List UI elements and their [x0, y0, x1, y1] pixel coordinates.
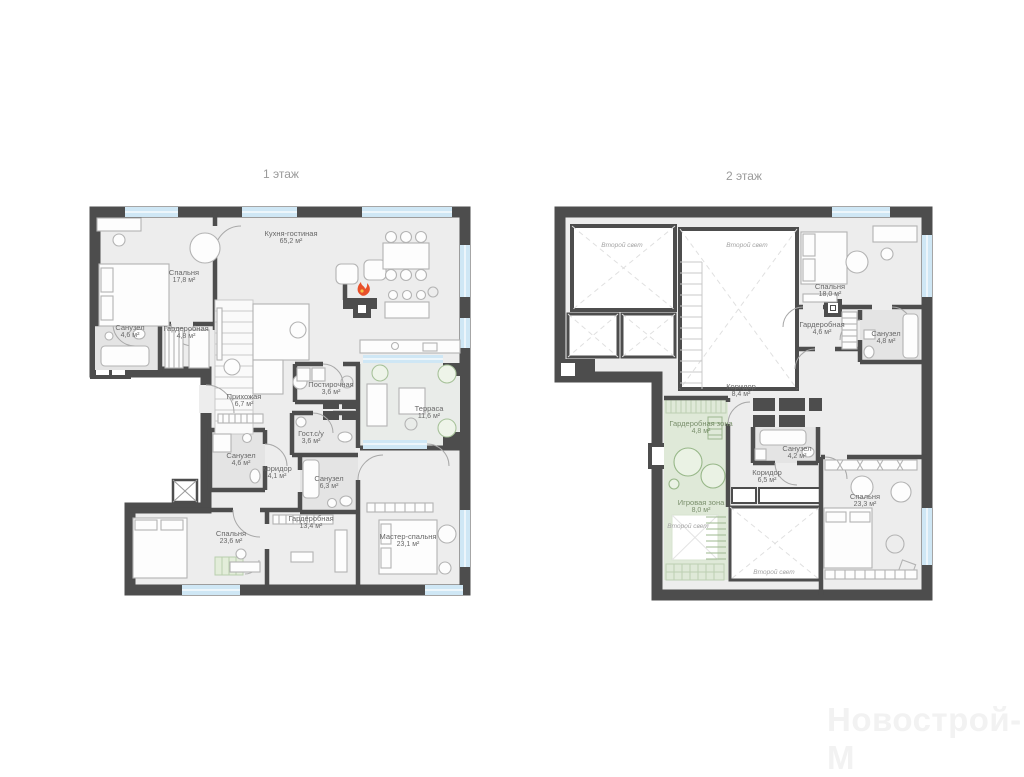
floor2-title: 2 этаж: [726, 169, 762, 183]
void-label: Второй свет: [601, 242, 642, 250]
room-label: Гардеробная зона4,8 м²: [669, 419, 732, 437]
room-label: Санузел4,6 м²: [115, 323, 144, 341]
floor2-plan: [560, 212, 927, 595]
room-label: Коридор6,5 м²: [752, 468, 782, 486]
void-label: Второй свет: [726, 242, 767, 250]
vent-shaft: [173, 480, 197, 502]
room-label: Терраса11,6 м²: [415, 404, 444, 422]
room-label: Санузел4,2 м²: [782, 444, 811, 462]
floor1-title: 1 этаж: [263, 167, 299, 181]
room-label: Санузел4,8 м²: [871, 329, 900, 347]
room-label: Коридор4,1 м²: [262, 464, 292, 482]
room-label: Гардеробная13,4 м²: [288, 514, 333, 532]
developer-watermark: Новострой-М: [827, 701, 1024, 777]
room-label: Мастер-спальня23,1 м²: [380, 532, 437, 550]
room-label: Спальня23,3 м²: [850, 492, 880, 510]
room-label: Санузел6,3 м²: [314, 474, 343, 492]
floorplan-canvas: 1 этаж 2 этаж: [0, 0, 1024, 768]
room-label: Спальня23,6 м²: [216, 529, 246, 547]
void-label: Второй свет: [753, 569, 794, 577]
room-label: Гост.с/у3,6 м²: [298, 429, 324, 447]
room-label: Гардеробная4,8 м²: [163, 324, 208, 342]
room-label: Прихожая6,7 м²: [227, 392, 262, 410]
room-label: Гардеробная4,6 м²: [799, 320, 844, 338]
room-label: Игровая зона8,0 м²: [678, 498, 725, 516]
room-label: Спальня17,8 м²: [169, 268, 199, 286]
room-label: Кухня-гостиная65,2 м²: [264, 229, 317, 247]
room-label: Коридор8,4 м²: [726, 382, 756, 400]
room-label: Спальня18,0 м²: [815, 282, 845, 300]
room-label: Санузел4,6 м²: [226, 451, 255, 469]
void-label: Второй свет: [667, 523, 708, 531]
room-label: Постирочная3,6 м²: [308, 380, 353, 398]
